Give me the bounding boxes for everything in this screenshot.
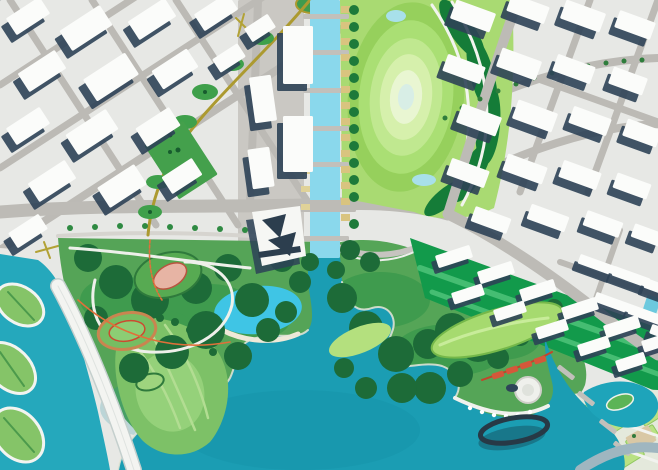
tree-mass xyxy=(256,318,280,342)
canal-tree-column xyxy=(349,39,359,49)
arc-tree-row xyxy=(443,116,448,121)
park-tree-dots xyxy=(203,90,207,94)
arc-tree-row xyxy=(496,89,501,94)
canal-tree-column xyxy=(349,219,359,229)
round-plaza-inner xyxy=(522,384,534,396)
canal-tree-column xyxy=(349,90,359,100)
west-dock-row xyxy=(301,204,310,210)
east-dock-row xyxy=(341,150,350,157)
west-dock-row xyxy=(301,186,310,192)
tree-mass xyxy=(275,301,297,323)
street-tree-row xyxy=(167,224,173,230)
canal-tree-column xyxy=(349,124,359,134)
canal-tree-column xyxy=(349,107,359,117)
boat-dots xyxy=(468,406,472,410)
east-dock-row xyxy=(341,6,350,13)
east-dock-row xyxy=(341,86,350,93)
cultural-center xyxy=(246,206,306,274)
tree-mass-east xyxy=(387,373,417,403)
screenshot-root xyxy=(0,0,658,470)
south-pond xyxy=(412,174,436,186)
tree-mass xyxy=(289,271,311,293)
east-dock-row xyxy=(341,22,350,29)
tree-mass-east xyxy=(414,372,446,404)
tree-mass-east xyxy=(327,283,357,313)
east-dock-row xyxy=(341,118,350,125)
arc-tree-row xyxy=(640,58,645,63)
canal-slab-building xyxy=(283,26,313,84)
canal-bridge xyxy=(303,236,349,241)
north-pond xyxy=(386,10,406,22)
tree-mass-east xyxy=(340,240,360,260)
tree-mass-east xyxy=(334,358,354,378)
east-dock-row xyxy=(341,166,350,173)
plaza-pavilion xyxy=(506,384,518,392)
canal-tree-column xyxy=(349,158,359,168)
leaf-rim-trees xyxy=(209,348,217,356)
east-dock-row xyxy=(341,54,350,61)
tree-mass xyxy=(224,342,252,370)
canal-tree-column xyxy=(349,73,359,83)
east-dock-row xyxy=(341,214,350,221)
street-tree-row xyxy=(67,225,73,231)
east-dock-row xyxy=(341,182,350,189)
arc-tree-row xyxy=(622,59,627,64)
street-tree-row xyxy=(217,226,223,232)
tree-mass-east xyxy=(360,252,380,272)
arc-tree-row xyxy=(478,97,483,102)
street-tree-row xyxy=(142,223,148,229)
east-dock-row xyxy=(341,134,350,141)
arc-tree-row xyxy=(604,61,609,66)
tree-mass-east xyxy=(327,261,345,279)
tree-mass xyxy=(99,265,133,299)
canal-bridge xyxy=(303,14,349,19)
street-tree-row xyxy=(192,225,198,231)
ellipse-park xyxy=(338,0,513,222)
boat-dots xyxy=(480,410,484,414)
master-plan-svg xyxy=(0,0,658,470)
canal-tree-column xyxy=(349,141,359,151)
east-dock-row xyxy=(341,102,350,109)
tree-mass-east xyxy=(355,377,377,399)
east-dock-row xyxy=(341,38,350,45)
park-tree-dots xyxy=(148,210,152,214)
tree-mass xyxy=(119,353,149,383)
canal-slab-building xyxy=(283,116,313,172)
canal-tree-column xyxy=(349,5,359,15)
street-tree-row xyxy=(92,224,98,230)
tree-mass-east xyxy=(447,361,473,387)
street-tree-row xyxy=(242,227,248,233)
park-tree-dots xyxy=(176,148,181,153)
canal-tree-column xyxy=(349,56,359,66)
park-tree-dots xyxy=(168,150,172,154)
boat-dots xyxy=(492,413,496,417)
east-dock-row xyxy=(341,70,350,77)
east-dock-row xyxy=(341,198,350,205)
canal-tree-column xyxy=(349,22,359,32)
boat-dots xyxy=(528,410,532,414)
tree-mass xyxy=(235,283,269,317)
canal-tree-column xyxy=(349,192,359,202)
street-tree-row xyxy=(117,223,123,229)
leaf-rim-trees xyxy=(171,318,179,326)
tree-mass-east xyxy=(378,336,414,372)
canal-tree-column xyxy=(349,175,359,185)
lawn-tree-dots xyxy=(632,434,636,438)
